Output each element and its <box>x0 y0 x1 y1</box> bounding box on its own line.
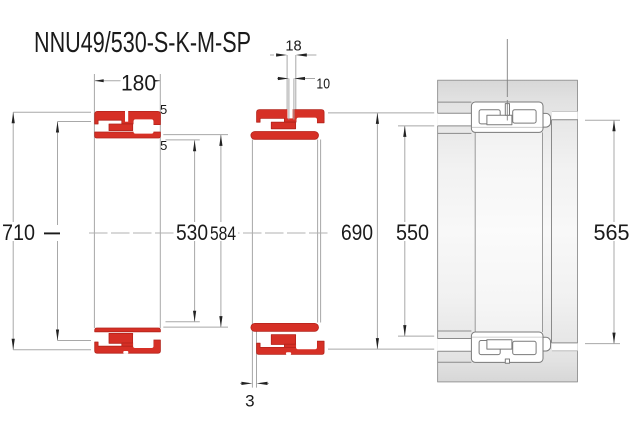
svg-text:710: 710 <box>2 220 35 245</box>
svg-text:NNU49/530-S-K-M-SP: NNU49/530-S-K-M-SP <box>34 27 251 59</box>
svg-text:18: 18 <box>285 37 301 54</box>
svg-text:550: 550 <box>396 220 429 245</box>
svg-text:180: 180 <box>121 70 156 95</box>
svg-text:5: 5 <box>160 102 167 117</box>
svg-text:5: 5 <box>160 138 167 153</box>
svg-text:10: 10 <box>316 75 330 92</box>
svg-text:530: 530 <box>176 220 208 245</box>
svg-text:690: 690 <box>341 220 373 245</box>
svg-text:565: 565 <box>594 220 630 245</box>
svg-text:584: 584 <box>210 224 236 245</box>
svg-text:3: 3 <box>245 392 254 411</box>
